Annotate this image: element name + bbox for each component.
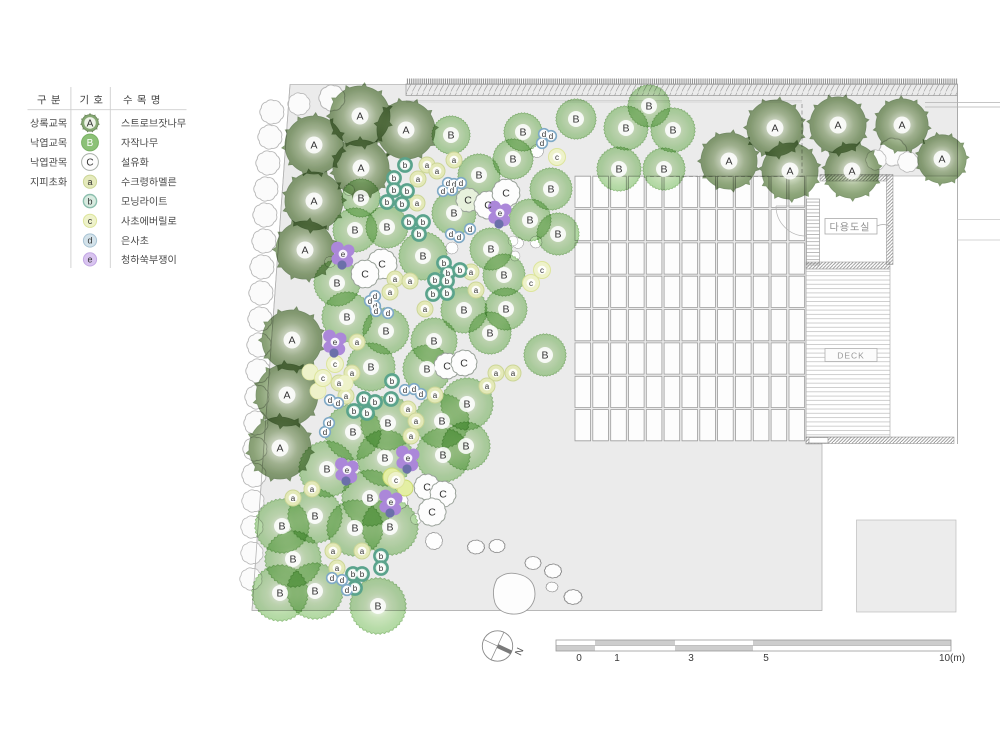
svg-text:d: d — [374, 307, 378, 316]
svg-text:b: b — [392, 174, 397, 183]
svg-text:DECK: DECK — [837, 351, 865, 361]
svg-text:A: A — [310, 140, 317, 152]
svg-text:C: C — [484, 200, 492, 212]
svg-text:A: A — [283, 390, 290, 402]
svg-text:A: A — [310, 196, 317, 208]
svg-text:b: b — [421, 218, 426, 227]
svg-text:b: b — [390, 377, 395, 386]
svg-text:a: a — [291, 494, 296, 503]
svg-text:d: d — [441, 187, 445, 196]
svg-text:b: b — [379, 564, 384, 573]
svg-text:B: B — [554, 229, 561, 241]
svg-text:b: b — [389, 395, 394, 404]
svg-text:a: a — [406, 405, 411, 414]
svg-text:B: B — [386, 522, 393, 534]
svg-text:e: e — [87, 255, 92, 265]
svg-text:a: a — [511, 369, 516, 378]
svg-text:b: b — [431, 290, 436, 299]
svg-text:b: b — [392, 186, 397, 195]
svg-text:B: B — [572, 114, 579, 126]
svg-text:d: d — [450, 186, 454, 195]
svg-text:B: B — [541, 350, 548, 362]
svg-text:A: A — [301, 245, 308, 257]
svg-text:B: B — [438, 416, 445, 428]
svg-text:B: B — [311, 511, 318, 523]
svg-text:C: C — [464, 195, 472, 207]
svg-text:a: a — [435, 167, 440, 176]
svg-text:B: B — [526, 215, 533, 227]
svg-text:A: A — [898, 120, 905, 132]
svg-text:a: a — [423, 305, 428, 314]
svg-text:B: B — [357, 193, 364, 205]
svg-text:d: d — [549, 132, 553, 141]
svg-text:a: a — [87, 177, 92, 187]
svg-text:b: b — [433, 276, 438, 285]
svg-text:c: c — [555, 153, 559, 162]
svg-text:a: a — [452, 156, 457, 165]
svg-text:d: d — [459, 179, 463, 188]
svg-text:d: d — [87, 236, 92, 246]
svg-text:B: B — [463, 399, 470, 411]
svg-text:C: C — [460, 358, 468, 370]
svg-text:a: a — [416, 175, 421, 184]
svg-text:N: N — [512, 645, 525, 656]
svg-text:B: B — [367, 362, 374, 374]
svg-text:A: A — [771, 123, 778, 135]
svg-text:B: B — [349, 427, 356, 439]
svg-text:b: b — [351, 570, 356, 579]
svg-text:a: a — [360, 547, 365, 556]
svg-text:b: b — [352, 407, 357, 416]
svg-text:10(m): 10(m) — [939, 653, 965, 664]
svg-text:b: b — [400, 200, 405, 209]
svg-text:e: e — [498, 209, 503, 218]
svg-text:C: C — [502, 188, 510, 200]
svg-text:A: A — [725, 156, 732, 168]
svg-text:c: c — [88, 216, 93, 226]
svg-text:b: b — [87, 196, 92, 206]
svg-text:B: B — [487, 244, 494, 256]
svg-text:e: e — [345, 466, 350, 475]
svg-text:B: B — [439, 450, 446, 462]
svg-text:C: C — [86, 158, 93, 169]
svg-text:A: A — [402, 125, 409, 137]
svg-text:A: A — [87, 119, 94, 130]
svg-text:d: d — [540, 139, 544, 148]
svg-text:d: d — [345, 586, 349, 595]
svg-text:d: d — [340, 576, 344, 585]
svg-text:B: B — [351, 225, 358, 237]
svg-text:d: d — [449, 230, 453, 239]
svg-text:b: b — [407, 218, 412, 227]
svg-text:a: a — [409, 432, 414, 441]
svg-text:B: B — [615, 164, 622, 176]
svg-text:a: a — [344, 392, 349, 401]
svg-text:b: b — [385, 198, 390, 207]
svg-text:B: B — [450, 208, 457, 220]
svg-text:B: B — [547, 184, 554, 196]
svg-text:B: B — [323, 464, 330, 476]
svg-text:c: c — [321, 374, 325, 383]
svg-text:B: B — [486, 328, 493, 340]
svg-text:b: b — [445, 277, 450, 286]
svg-text:d: d — [328, 396, 332, 405]
svg-text:d: d — [330, 574, 334, 583]
svg-text:B: B — [381, 453, 388, 465]
svg-text:A: A — [357, 163, 364, 175]
svg-text:e: e — [333, 338, 338, 347]
svg-text:a: a — [433, 391, 438, 400]
svg-text:B: B — [645, 101, 652, 113]
svg-text:b: b — [417, 230, 422, 239]
svg-text:B: B — [622, 123, 629, 135]
svg-text:B: B — [333, 278, 340, 290]
svg-text:a: a — [393, 275, 398, 284]
svg-text:e: e — [389, 498, 394, 507]
svg-text:a: a — [331, 547, 336, 556]
svg-text:A: A — [288, 335, 295, 347]
svg-text:a: a — [337, 379, 342, 388]
svg-text:B: B — [500, 270, 507, 282]
svg-text:a: a — [425, 161, 430, 170]
svg-text:d: d — [468, 225, 472, 234]
svg-text:a: a — [335, 564, 340, 573]
svg-text:C: C — [361, 269, 369, 281]
svg-text:e: e — [341, 250, 346, 259]
svg-text:B: B — [311, 586, 318, 598]
svg-text:a: a — [388, 288, 393, 297]
svg-text:B: B — [278, 521, 285, 533]
svg-text:e: e — [406, 454, 411, 463]
svg-text:C: C — [378, 259, 386, 271]
svg-text:B: B — [475, 170, 482, 182]
svg-text:d: d — [542, 130, 546, 139]
svg-text:B: B — [423, 364, 430, 376]
svg-text:c: c — [540, 266, 544, 275]
svg-text:B: B — [351, 523, 358, 535]
svg-text:b: b — [458, 266, 463, 275]
svg-text:C: C — [423, 482, 431, 494]
svg-text:B: B — [660, 164, 667, 176]
svg-text:B: B — [460, 305, 467, 317]
svg-text:b: b — [405, 187, 410, 196]
svg-text:A: A — [786, 166, 793, 178]
svg-text:b: b — [379, 552, 384, 561]
svg-text:a: a — [485, 382, 490, 391]
svg-text:B: B — [509, 154, 516, 166]
svg-text:d: d — [386, 309, 390, 318]
svg-text:B: B — [519, 127, 526, 139]
svg-text:b: b — [403, 161, 408, 170]
svg-text:d: d — [412, 385, 416, 394]
svg-text:B: B — [419, 251, 426, 263]
svg-text:a: a — [355, 338, 360, 347]
svg-text:d: d — [457, 233, 461, 242]
svg-text:a: a — [474, 286, 479, 295]
svg-text:A: A — [848, 166, 855, 178]
svg-text:C: C — [428, 507, 436, 519]
svg-text:a: a — [408, 277, 413, 286]
svg-text:b: b — [442, 259, 447, 268]
svg-text:a: a — [350, 369, 355, 378]
svg-text:B: B — [382, 326, 389, 338]
svg-text:b: b — [353, 584, 358, 593]
svg-text:B: B — [87, 138, 94, 149]
svg-text:B: B — [374, 601, 381, 613]
svg-text:B: B — [502, 304, 509, 316]
svg-text:B: B — [384, 418, 391, 430]
svg-text:c: c — [333, 360, 337, 369]
svg-text:A: A — [938, 154, 945, 166]
svg-text:b: b — [365, 409, 370, 418]
svg-text:5: 5 — [763, 653, 769, 664]
svg-text:0: 0 — [576, 653, 582, 664]
svg-text:B: B — [289, 554, 296, 566]
svg-text:B: B — [343, 312, 350, 324]
svg-text:A: A — [834, 120, 841, 132]
svg-text:B: B — [669, 125, 676, 137]
svg-text:b: b — [362, 395, 367, 404]
svg-text:B: B — [462, 441, 469, 453]
svg-text:a: a — [415, 199, 420, 208]
svg-text:A: A — [356, 111, 363, 123]
svg-text:B: B — [366, 493, 373, 505]
svg-text:c: c — [394, 476, 398, 485]
svg-text:B: B — [276, 588, 283, 600]
svg-text:c: c — [529, 279, 533, 288]
svg-text:C: C — [443, 361, 451, 373]
svg-text:a: a — [494, 369, 499, 378]
svg-text:d: d — [327, 419, 331, 428]
svg-text:1: 1 — [614, 653, 620, 664]
svg-text:b: b — [445, 289, 450, 298]
svg-text:d: d — [419, 390, 423, 399]
svg-text:3: 3 — [688, 653, 694, 664]
svg-text:C: C — [439, 489, 447, 501]
svg-text:d: d — [323, 428, 327, 437]
svg-text:d: d — [403, 386, 407, 395]
svg-text:a: a — [414, 417, 419, 426]
svg-text:B: B — [383, 222, 390, 234]
svg-text:A: A — [276, 443, 283, 455]
svg-text:b: b — [360, 570, 365, 579]
svg-text:B: B — [447, 130, 454, 142]
svg-text:B: B — [430, 336, 437, 348]
svg-text:a: a — [310, 485, 315, 494]
svg-text:b: b — [373, 398, 378, 407]
svg-text:d: d — [336, 399, 340, 408]
svg-text:a: a — [469, 268, 474, 277]
